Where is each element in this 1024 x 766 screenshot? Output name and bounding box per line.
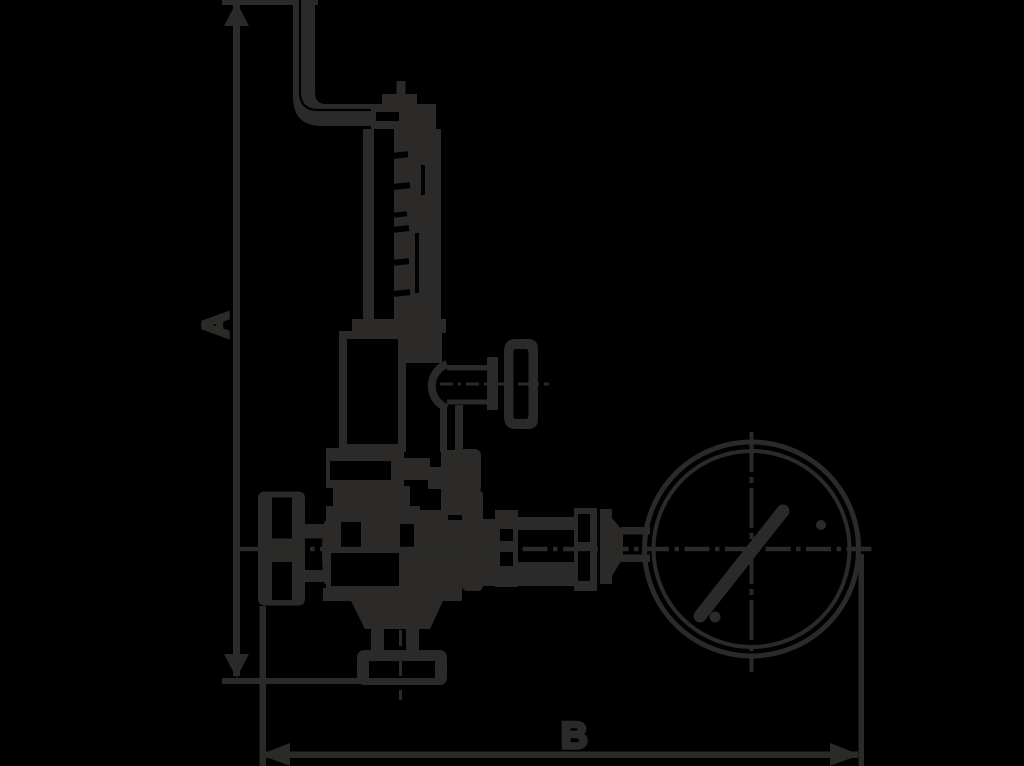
svg-text:A: A [195, 312, 236, 338]
svg-text:B: B [561, 715, 588, 756]
